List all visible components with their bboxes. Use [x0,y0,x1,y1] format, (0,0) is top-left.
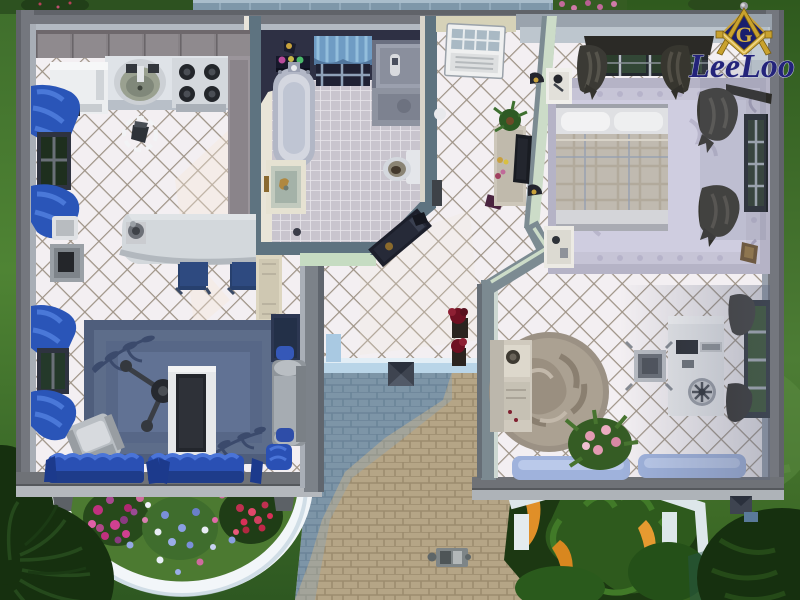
svg-text:LeeLoo: LeeLoo [688,48,795,85]
svg-text:G: G [735,22,752,47]
